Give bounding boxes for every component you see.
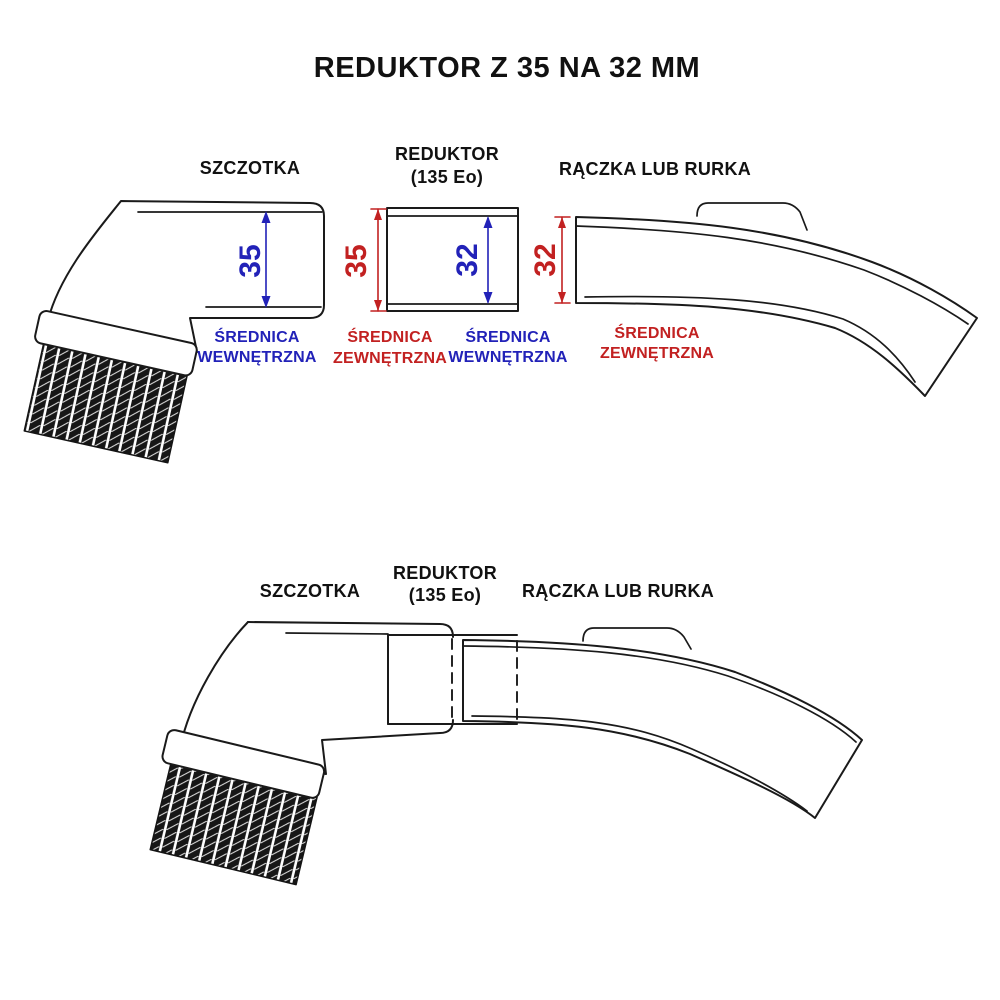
dim-value-raczka-outer: 32 — [529, 243, 563, 276]
raczka-drawing-assembled — [463, 628, 862, 818]
diagram-page: REDUKTOR Z 35 NA 32 MM SZCZOTKA REDUKTOR… — [0, 0, 1000, 1000]
szczotka-drawing-assembled — [141, 622, 453, 885]
caption-szczotka-inner-2: WEWNĘTRZNA — [197, 349, 316, 367]
dim-value-szczotka-inner: 35 — [234, 244, 268, 277]
label-reduktor-model-exploded: (135 Eo) — [411, 167, 483, 188]
caption-reduktor-inner-2: WEWNĘTRZNA — [448, 349, 567, 367]
assembled-view-drawing — [141, 622, 862, 885]
label-reduktor-assembled: REDUKTOR — [393, 563, 497, 584]
caption-reduktor-outer-1: ŚREDNICA — [347, 329, 432, 347]
caption-raczka-outer-2: ZEWNĘTRZNA — [600, 345, 714, 363]
label-raczka-assembled: RĄCZKA LUB RURKA — [522, 581, 714, 602]
label-reduktor-model-assembled: (135 Eo) — [409, 585, 481, 606]
page-title: REDUKTOR Z 35 NA 32 MM — [314, 52, 700, 85]
caption-reduktor-inner-1: ŚREDNICA — [465, 329, 550, 347]
diagram-line-art — [0, 0, 1000, 1000]
label-raczka-exploded: RĄCZKA LUB RURKA — [559, 159, 751, 180]
label-szczotka-exploded: SZCZOTKA — [200, 158, 300, 179]
label-szczotka-assembled: SZCZOTKA — [260, 581, 360, 602]
dim-value-reduktor-inner: 32 — [451, 243, 485, 276]
dim-value-reduktor-outer: 35 — [340, 244, 374, 277]
caption-szczotka-inner-1: ŚREDNICA — [214, 329, 299, 347]
caption-reduktor-outer-2: ZEWNĘTRZNA — [333, 350, 447, 368]
label-reduktor-exploded: REDUKTOR — [395, 144, 499, 165]
raczka-drawing-exploded — [576, 203, 977, 396]
caption-raczka-outer-1: ŚREDNICA — [614, 325, 699, 343]
